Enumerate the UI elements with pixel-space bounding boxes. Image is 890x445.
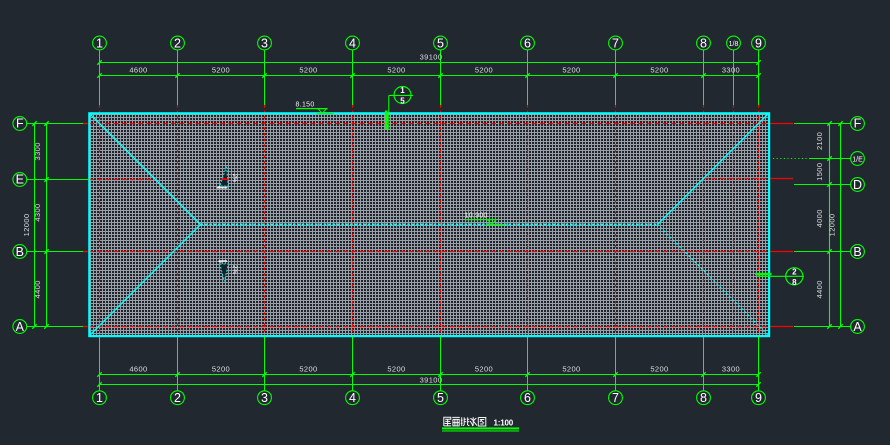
svg-text:5200: 5200 <box>299 66 317 75</box>
svg-text:F: F <box>854 117 862 131</box>
svg-text:3: 3 <box>261 391 268 405</box>
svg-text:9: 9 <box>755 391 762 405</box>
svg-text:4300: 4300 <box>33 203 42 221</box>
svg-text:3300: 3300 <box>722 66 740 75</box>
svg-text:4400: 4400 <box>33 280 42 298</box>
svg-text:5200: 5200 <box>387 66 405 75</box>
svg-text:5200: 5200 <box>475 66 493 75</box>
svg-text:5200: 5200 <box>562 365 580 374</box>
svg-text:5200: 5200 <box>212 365 230 374</box>
svg-text:39100: 39100 <box>420 52 443 61</box>
svg-text:4400: 4400 <box>815 280 824 298</box>
svg-text:B: B <box>16 245 24 259</box>
svg-text:5200: 5200 <box>387 365 405 374</box>
svg-text:8.150: 8.150 <box>296 101 315 108</box>
svg-text:8: 8 <box>700 391 707 405</box>
svg-text:5: 5 <box>400 97 405 106</box>
svg-text:1: 1 <box>96 37 103 51</box>
svg-text:3300: 3300 <box>722 365 740 374</box>
svg-text:3300: 3300 <box>33 142 42 160</box>
svg-text:E: E <box>16 173 24 187</box>
svg-text:6: 6 <box>524 37 531 51</box>
svg-text:5: 5 <box>437 391 444 405</box>
svg-text:1/8: 1/8 <box>729 41 739 48</box>
svg-text:2: 2 <box>792 267 797 276</box>
svg-text:3: 3 <box>261 37 268 51</box>
svg-text:F: F <box>16 117 24 131</box>
svg-text:12000: 12000 <box>828 213 837 236</box>
svg-text:1:100: 1:100 <box>494 419 514 428</box>
svg-text:7: 7 <box>612 37 619 51</box>
svg-text:A: A <box>16 320 25 334</box>
svg-text:2%: 2% <box>231 174 237 183</box>
svg-text:1: 1 <box>96 391 103 405</box>
svg-text:5200: 5200 <box>562 66 580 75</box>
svg-text:12000: 12000 <box>22 213 31 236</box>
svg-text:7: 7 <box>612 391 619 405</box>
svg-text:4600: 4600 <box>129 66 147 75</box>
svg-text:5200: 5200 <box>475 365 493 374</box>
svg-text:8: 8 <box>700 37 707 51</box>
svg-text:2: 2 <box>174 391 181 405</box>
svg-text:2: 2 <box>174 37 181 51</box>
svg-text:4600: 4600 <box>129 365 147 374</box>
svg-text:8: 8 <box>792 278 797 287</box>
svg-text:6: 6 <box>524 391 531 405</box>
svg-text:1: 1 <box>400 86 405 95</box>
svg-text:5200: 5200 <box>212 66 230 75</box>
svg-text:4: 4 <box>349 391 356 405</box>
svg-text:5: 5 <box>437 37 444 51</box>
svg-text:A: A <box>853 320 862 334</box>
svg-text:4: 4 <box>349 37 356 51</box>
svg-text:5200: 5200 <box>650 66 668 75</box>
svg-text:9: 9 <box>755 37 762 51</box>
svg-text:2100: 2100 <box>815 132 824 150</box>
svg-text:10.900: 10.900 <box>465 213 488 220</box>
svg-text:4000: 4000 <box>815 209 824 227</box>
svg-text:5200: 5200 <box>650 365 668 374</box>
svg-text:2%: 2% <box>231 265 237 274</box>
svg-text:D: D <box>853 178 862 192</box>
svg-text:5200: 5200 <box>299 365 317 374</box>
svg-text:1500: 1500 <box>815 163 824 181</box>
svg-text:1/E: 1/E <box>852 156 863 163</box>
svg-text:B: B <box>853 245 861 259</box>
svg-text:39100: 39100 <box>420 375 443 384</box>
